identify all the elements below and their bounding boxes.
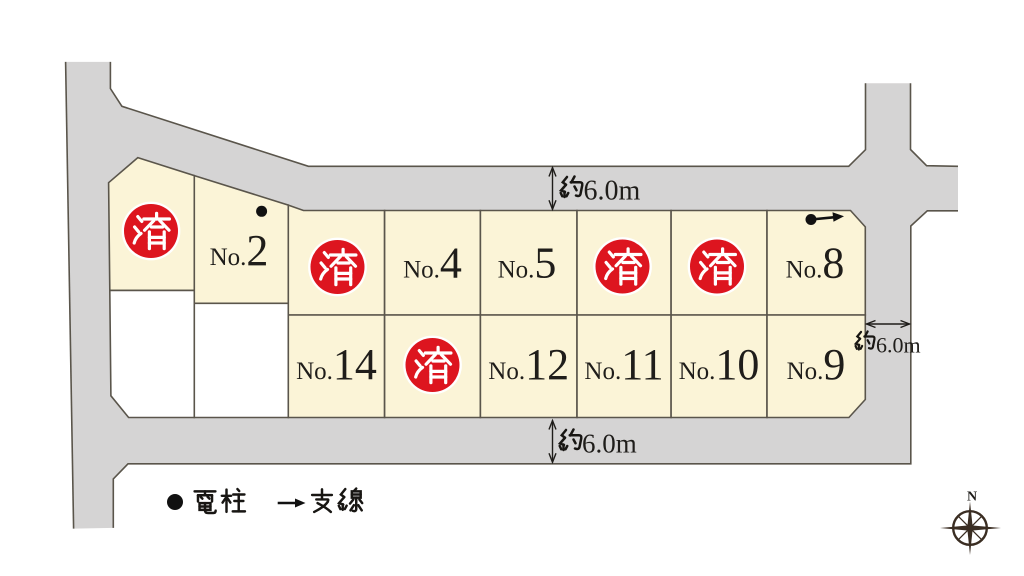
svg-text:6.0m: 6.0m xyxy=(876,333,921,358)
svg-text:6.0m: 6.0m xyxy=(582,429,637,459)
svg-text:N: N xyxy=(967,490,977,505)
svg-text:6.0m: 6.0m xyxy=(584,176,641,207)
